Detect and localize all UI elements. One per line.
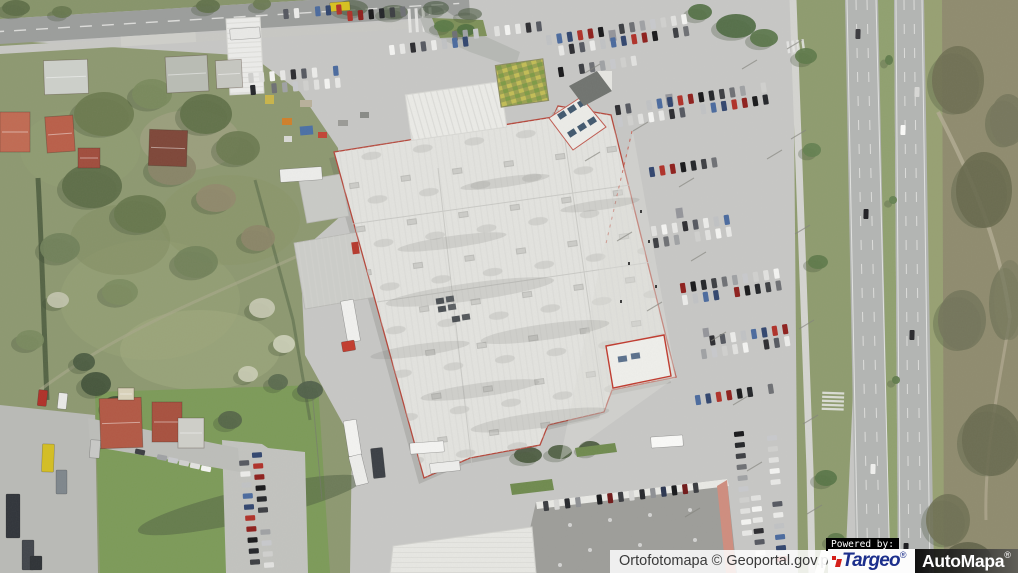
automapa-registered: ®: [1004, 550, 1011, 560]
targeo-registered: ®: [900, 550, 907, 560]
photo-grain: [0, 0, 1018, 573]
automapa-logo[interactable]: AutoMapa ®: [915, 549, 1018, 573]
targeo-logo[interactable]: Targeo ®: [828, 549, 915, 573]
targeo-mark-icon: [832, 554, 842, 569]
aerial-photo[interactable]: [0, 0, 1018, 573]
targeo-text: Targeo: [842, 550, 900, 572]
map-viewport[interactable]: Ortofotomapa © Geoportal.gov.pl Powered …: [0, 0, 1018, 573]
automapa-text: AutoMapa: [922, 551, 1004, 572]
attribution-text: Ortofotomapa © Geoportal.gov.pl: [619, 553, 832, 569]
attribution-bar: Ortofotomapa © Geoportal.gov.pl: [610, 550, 841, 573]
